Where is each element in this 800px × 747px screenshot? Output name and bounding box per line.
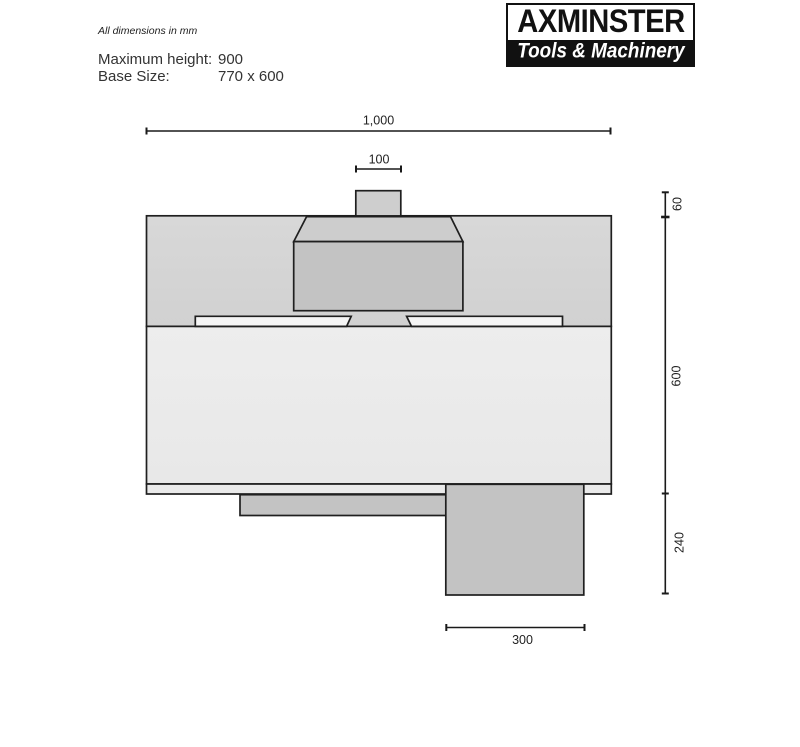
svg-text:600: 600 <box>670 366 684 387</box>
svg-text:100: 100 <box>369 153 390 167</box>
svg-text:1,000: 1,000 <box>363 114 394 128</box>
svg-text:60: 60 <box>671 197 685 211</box>
svg-text:240: 240 <box>673 532 687 553</box>
svg-text:300: 300 <box>512 633 533 647</box>
